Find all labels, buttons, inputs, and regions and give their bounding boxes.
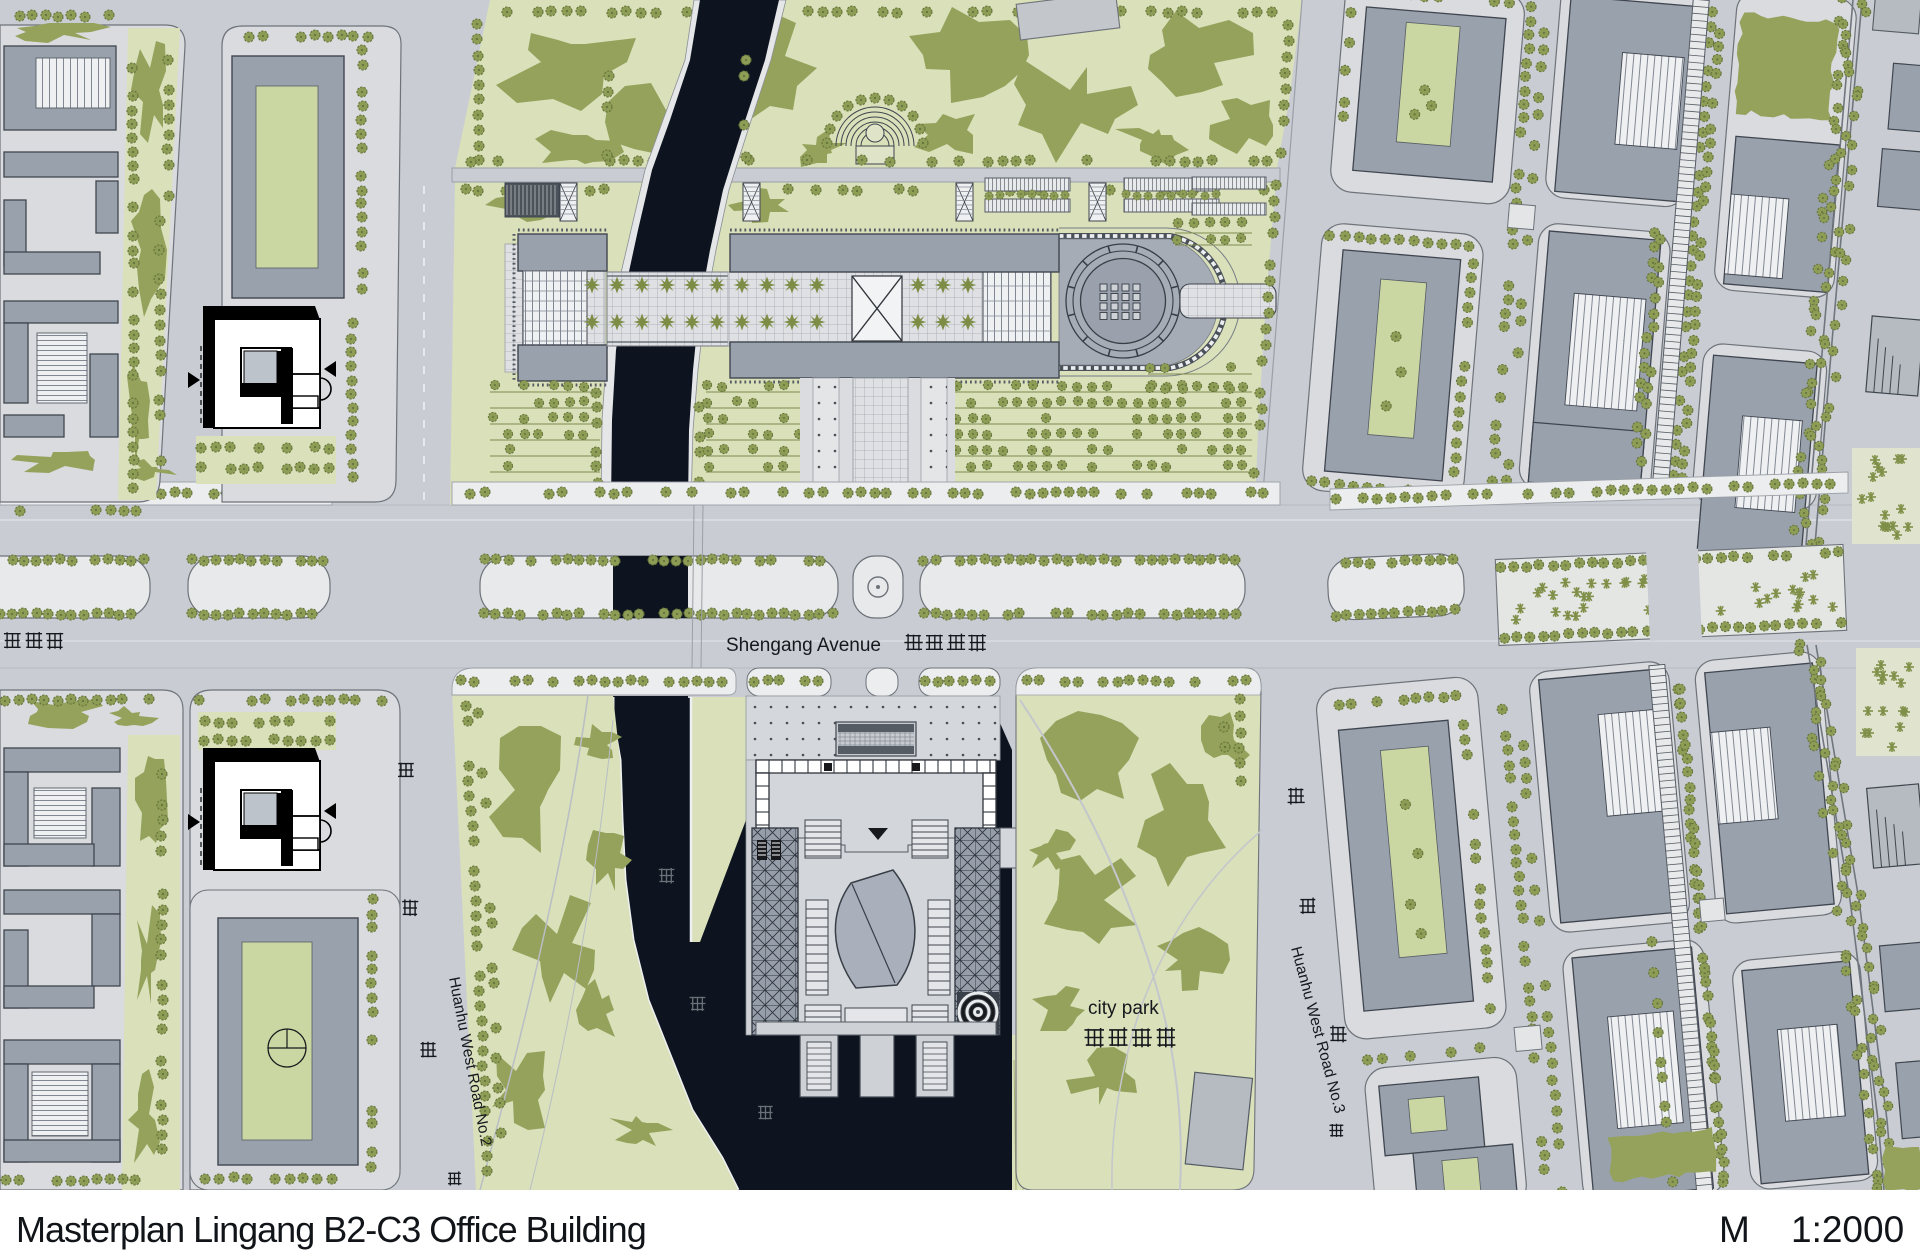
svg-text:Shengang Avenue: Shengang Avenue: [726, 635, 881, 656]
svg-text:city park: city park: [1088, 998, 1159, 1019]
svg-text:Masterplan Lingang B2-C3 Offic: Masterplan Lingang B2-C3 Office Building: [16, 1209, 646, 1250]
svg-text:M: M: [1719, 1209, 1750, 1250]
svg-text:1:2000: 1:2000: [1791, 1209, 1904, 1250]
